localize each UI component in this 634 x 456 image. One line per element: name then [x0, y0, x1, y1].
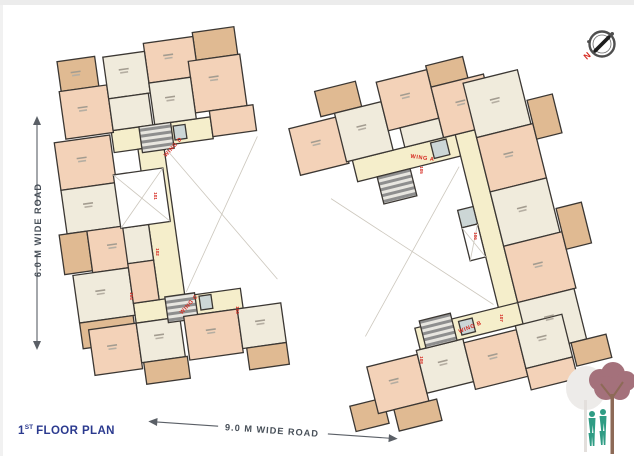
unit-number: 102 [155, 248, 160, 256]
person-head [600, 409, 606, 415]
room [54, 135, 116, 190]
tree-trunk [611, 394, 615, 454]
room [123, 224, 154, 263]
person-body [600, 416, 607, 431]
people-silhouettes [589, 409, 607, 446]
terrace [247, 342, 290, 369]
compass-lug [610, 32, 614, 36]
unit-number: 106 [473, 232, 478, 240]
terrace [57, 56, 99, 91]
person-legs [600, 431, 606, 445]
room [89, 323, 143, 375]
arrowhead-right-icon [388, 434, 398, 443]
unit-number: 107 [499, 314, 504, 322]
unit-number: 101 [153, 192, 158, 200]
room [73, 268, 135, 323]
page-title: 1STFLOOR PLAN [18, 424, 115, 437]
room [149, 77, 196, 124]
room [59, 85, 113, 139]
room [136, 317, 185, 363]
arrowhead-up-icon [33, 116, 41, 125]
room [184, 309, 244, 360]
compass-lug [587, 40, 590, 43]
bottom-road-label: 9.0 M WIDE ROAD [225, 422, 320, 439]
lift [431, 139, 450, 158]
person-body [589, 418, 596, 433]
dimension-line [154, 422, 218, 426]
floor-plan-drawing: WING D WING C [0, 0, 634, 456]
room [109, 93, 153, 130]
room [103, 51, 150, 98]
room [209, 105, 256, 137]
floor-plan-label: FLOOR PLAN [36, 425, 115, 437]
floor-plan-canvas: WING D WING C [0, 0, 634, 456]
floor-number: 1 [18, 425, 25, 437]
courtyard-cross [166, 136, 277, 291]
left-road-dimension: 6.0 M WIDE ROAD [33, 116, 43, 350]
unit-number: 105 [419, 166, 424, 174]
person-head [589, 411, 595, 417]
left-road-label: 6.0 M WIDE ROAD [33, 183, 43, 277]
lift [199, 294, 213, 310]
arrowhead-down-icon [33, 341, 41, 350]
landscape-art [566, 362, 634, 454]
unit-number: 103 [235, 306, 240, 314]
room [61, 183, 123, 234]
floor-ordinal: ST [25, 424, 33, 431]
building-left: WING D WING C [34, 26, 290, 394]
room [237, 303, 286, 349]
unit-number: 104 [129, 292, 134, 300]
dimension-line [328, 434, 392, 438]
arrowhead-left-icon [148, 417, 158, 426]
unit-number: 108 [419, 356, 424, 364]
person-legs [589, 433, 595, 446]
ghost-tree-trunk [584, 400, 587, 452]
room [188, 54, 247, 113]
compass-icon: N [581, 32, 614, 62]
duct-shaft [113, 168, 170, 228]
